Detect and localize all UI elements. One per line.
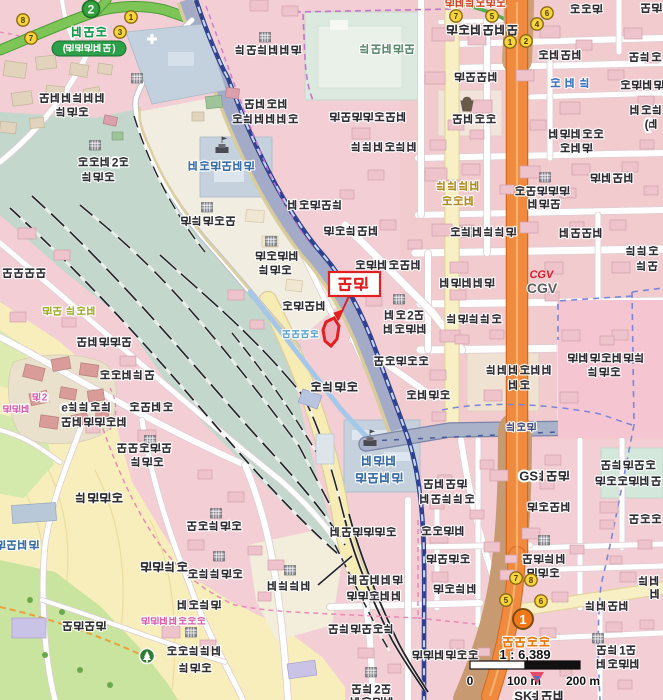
svg-text:2: 2 <box>42 393 48 404</box>
svg-text:7: 7 <box>29 34 34 43</box>
svg-text:1: 1 <box>519 612 526 627</box>
svg-text:200 m: 200 m <box>566 674 600 688</box>
svg-text:8: 8 <box>529 576 534 585</box>
svg-text:2: 2 <box>88 3 95 17</box>
svg-text:1 : 6,389: 1 : 6,389 <box>499 647 550 662</box>
svg-text:6: 6 <box>539 597 544 606</box>
svg-text:(: ( <box>645 117 649 131</box>
svg-text:3: 3 <box>118 28 123 37</box>
svg-text:7: 7 <box>514 574 519 583</box>
svg-text:2: 2 <box>524 37 529 46</box>
svg-text:e: e <box>61 400 68 414</box>
svg-text:GS: GS <box>519 469 538 484</box>
svg-text:CGV: CGV <box>527 280 558 296</box>
svg-text:): ) <box>112 44 115 55</box>
svg-text:2: 2 <box>407 308 414 322</box>
svg-text:4: 4 <box>535 20 540 29</box>
svg-text:SK: SK <box>514 689 533 700</box>
svg-text:1: 1 <box>129 13 134 22</box>
svg-text:5: 5 <box>490 12 495 21</box>
svg-text:2: 2 <box>374 682 381 696</box>
svg-text:6: 6 <box>545 9 550 18</box>
svg-text:8: 8 <box>21 16 26 25</box>
svg-text:5: 5 <box>504 596 509 605</box>
svg-text:7: 7 <box>454 12 459 21</box>
svg-text:1: 1 <box>508 38 513 47</box>
svg-text:2: 2 <box>112 155 119 169</box>
svg-text:1: 1 <box>619 643 626 657</box>
svg-text:0: 0 <box>467 674 474 688</box>
